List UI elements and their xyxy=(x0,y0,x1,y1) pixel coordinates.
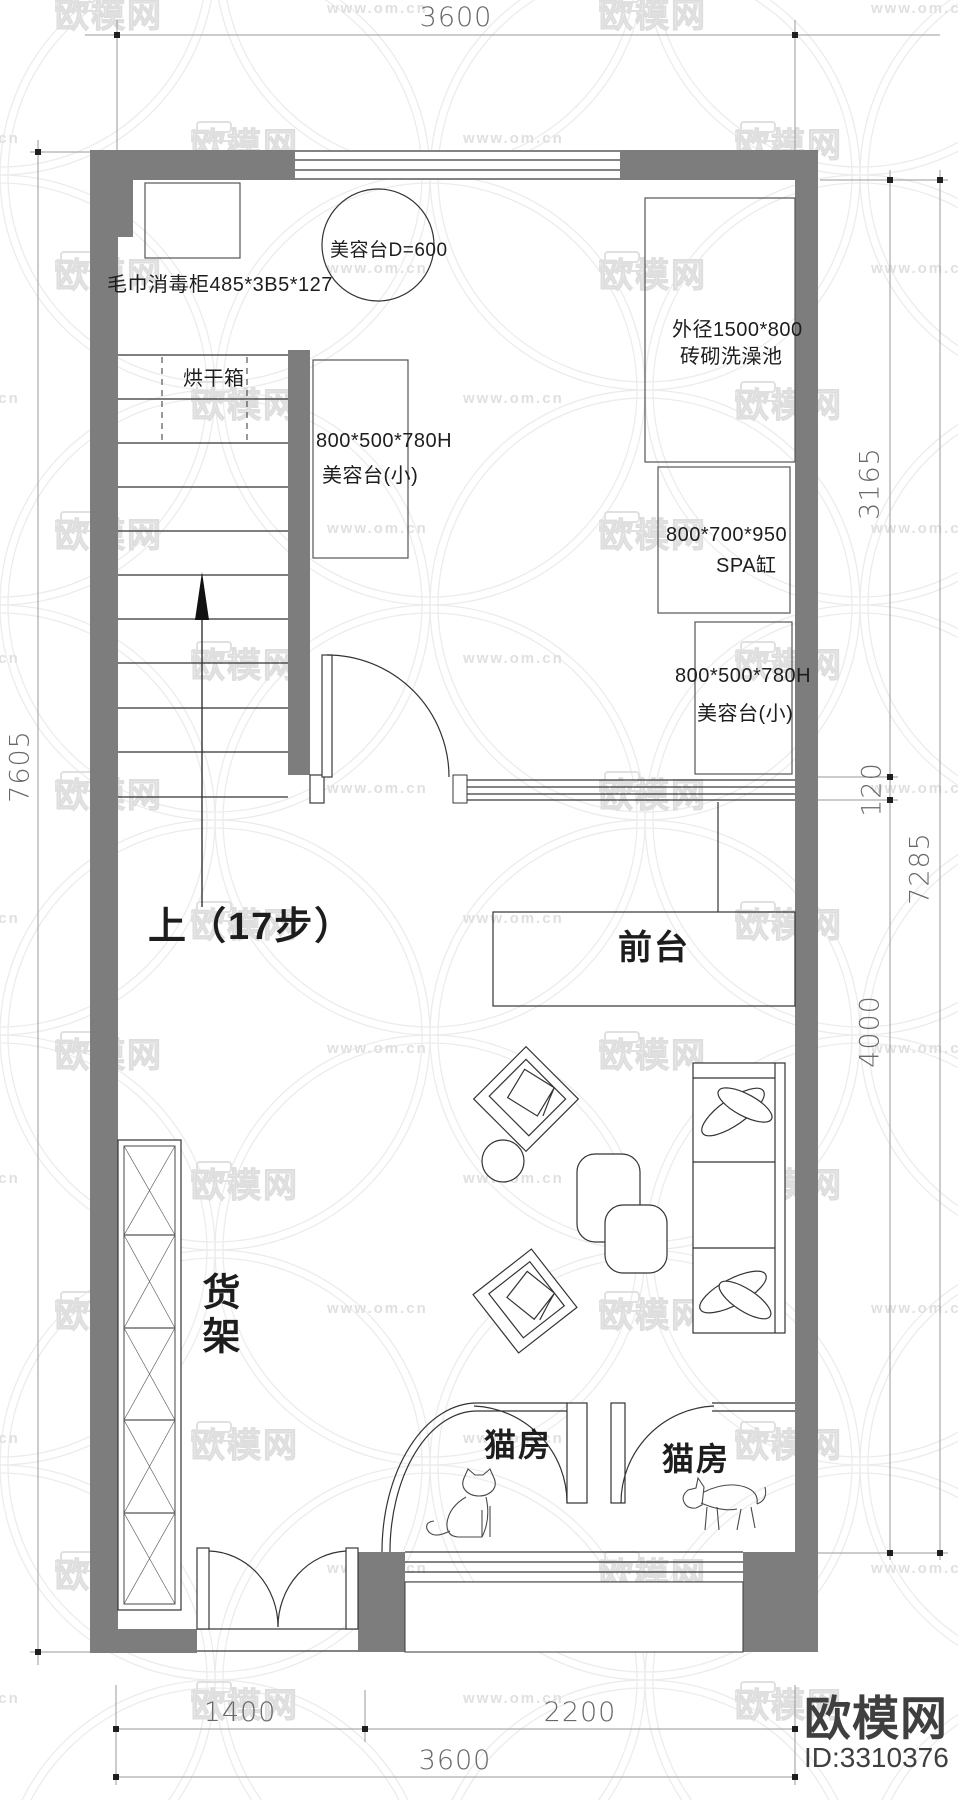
label-dryer-box: 烘干箱 xyxy=(183,362,245,391)
dim-right-total: 7285 xyxy=(905,814,936,924)
label-shelf: 货架 xyxy=(190,1272,245,1360)
dimension-dot xyxy=(113,1726,119,1732)
label-spa-size: 800*700*950 xyxy=(666,524,787,547)
label-small-table-1-size: 800*500*780H xyxy=(316,430,452,453)
storefront-sill xyxy=(405,1582,743,1652)
glass-partition xyxy=(457,780,795,800)
top-window-opening xyxy=(295,150,620,180)
dimension-dot xyxy=(114,32,120,38)
armchair-2 xyxy=(473,1249,577,1353)
label-cat-room-left: 猫房 xyxy=(484,1420,552,1466)
site-watermark-name: 欧模网 xyxy=(804,1697,949,1742)
label-bath-pool-name: 砖砌洗澡池 xyxy=(680,340,783,369)
dimension-dot xyxy=(937,177,943,183)
staircase xyxy=(118,355,288,797)
dimension-dot xyxy=(362,1726,368,1732)
dimension-dot xyxy=(792,1774,798,1780)
dimension-dot xyxy=(887,797,893,803)
site-watermark-id: ID:3310376 xyxy=(804,1742,949,1774)
sofa xyxy=(693,1063,785,1333)
dimension-dot xyxy=(792,1726,798,1732)
cat-room-curved-wall-outer xyxy=(382,1403,477,1552)
dim-right-partition: 120 xyxy=(857,740,888,840)
dimension-dot xyxy=(35,1649,41,1655)
floorplan-canvas: 欧模网www.om.cn欧模网www.om.cnwww.om.cn欧模网www.… xyxy=(0,0,958,1800)
wall-left xyxy=(90,180,118,1613)
towel-sterilizer-cabinet xyxy=(145,183,240,258)
dim-bottom-right: 2200 xyxy=(520,1697,640,1728)
site-watermark: 欧模网 ID:3310376 xyxy=(804,1697,949,1774)
label-small-table-1-name: 美容台(小) xyxy=(322,459,418,488)
dimension-dot xyxy=(113,1774,119,1780)
entry-double-door xyxy=(197,1548,358,1629)
wall-pillar-right xyxy=(743,1552,795,1652)
dimension-dot xyxy=(887,177,893,183)
dimension-dot xyxy=(792,32,798,38)
dim-bottom-total: 3600 xyxy=(395,1745,515,1776)
label-front-desk: 前台 xyxy=(618,920,690,969)
wall-bottom-left-seg xyxy=(90,1629,197,1653)
cat-room-curved-wall-inner xyxy=(390,1411,477,1552)
grooming-room-door xyxy=(310,655,449,803)
wall-stairs xyxy=(288,350,310,775)
label-small-table-2-name: 美容台(小) xyxy=(697,697,793,726)
label-small-table-2-size: 800*500*780H xyxy=(675,665,811,688)
wall-pillar-left xyxy=(358,1552,405,1652)
dim-right-lower: 4000 xyxy=(855,977,886,1087)
label-bath-pool-size: 外径1500*800 xyxy=(672,313,803,342)
dim-left-height: 7605 xyxy=(5,712,36,822)
dim-top-width: 3600 xyxy=(396,2,516,33)
cat-room-divider-2 xyxy=(611,1403,625,1503)
dim-bottom-left: 1400 xyxy=(180,1697,300,1728)
label-spa-name: SPA缸 xyxy=(716,549,777,578)
retail-shelf xyxy=(118,1140,181,1610)
dimension-dot xyxy=(937,1550,943,1556)
storefront-window xyxy=(405,1552,743,1582)
partition-door-frame xyxy=(453,775,467,803)
wall-right xyxy=(795,150,818,1652)
coffee-table-2 xyxy=(605,1205,667,1273)
cat-drawing-sitting xyxy=(427,1469,496,1537)
dimension-dot xyxy=(35,149,41,155)
cat-rooms xyxy=(382,1403,795,1552)
label-round-grooming-table: 美容台D=600 xyxy=(330,235,448,262)
stairs-direction-arrow xyxy=(195,572,209,907)
label-stairs-up: 上（17步） xyxy=(148,895,354,950)
label-cat-room-right: 猫房 xyxy=(662,1434,730,1480)
cat-drawing-walking xyxy=(683,1478,766,1530)
dimension-dot xyxy=(887,1550,893,1556)
label-towel-cabinet: 毛巾消毒柜485*3B5*127 xyxy=(107,268,333,297)
side-table-round xyxy=(482,1140,524,1182)
armchair-1 xyxy=(474,1047,579,1152)
entry-sill xyxy=(197,1629,358,1651)
cat-room-divider-1 xyxy=(567,1403,587,1503)
dimension-dot xyxy=(887,774,893,780)
dim-right-upper: 3165 xyxy=(855,429,886,539)
